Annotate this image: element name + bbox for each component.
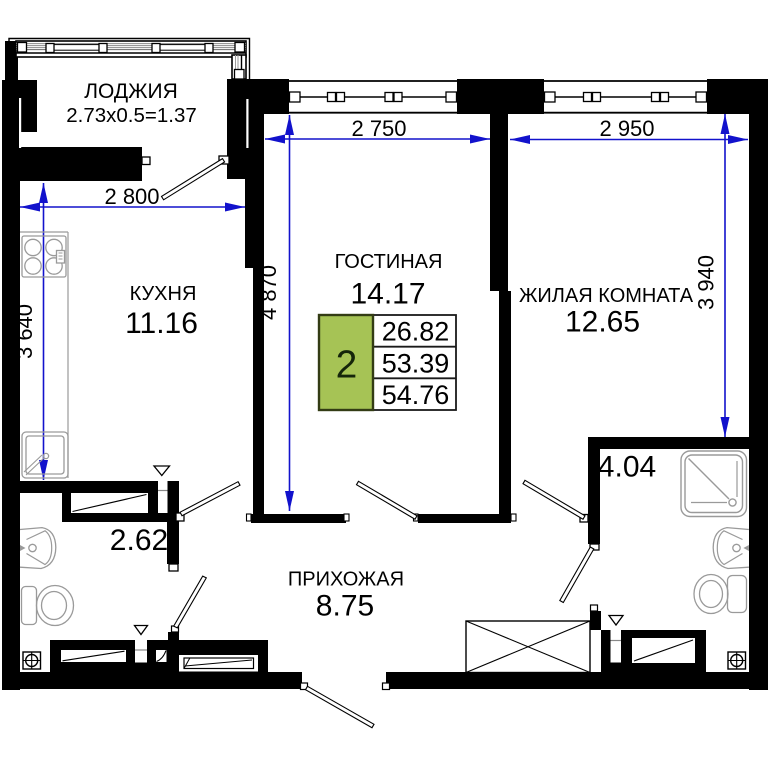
svg-text:ЛОДЖИЯ: ЛОДЖИЯ — [84, 80, 178, 103]
svg-text:3 640: 3 640 — [12, 304, 37, 359]
svg-text:2.62: 2.62 — [110, 524, 168, 557]
svg-text:8.75: 8.75 — [316, 590, 374, 623]
svg-text:2.73х0.5=1.37: 2.73х0.5=1.37 — [66, 104, 197, 127]
svg-text:3 940: 3 940 — [694, 255, 719, 310]
svg-text:2: 2 — [336, 344, 358, 387]
svg-text:2 800: 2 800 — [104, 184, 159, 209]
svg-text:4 870: 4 870 — [256, 265, 281, 320]
svg-text:ПРИХОЖАЯ: ПРИХОЖАЯ — [288, 569, 404, 591]
svg-text:11.16: 11.16 — [125, 307, 198, 340]
svg-text:ЖИЛАЯ КОМНАТА: ЖИЛАЯ КОМНАТА — [519, 285, 694, 307]
svg-text:2 950: 2 950 — [599, 116, 654, 141]
svg-text:53.39: 53.39 — [382, 348, 450, 378]
svg-text:ГОСТИНАЯ: ГОСТИНАЯ — [335, 251, 443, 273]
svg-text:КУХНЯ: КУХНЯ — [130, 283, 197, 305]
svg-text:14.17: 14.17 — [350, 278, 425, 311]
svg-text:12.65: 12.65 — [565, 306, 640, 339]
svg-text:54.76: 54.76 — [382, 380, 450, 410]
svg-text:4.04: 4.04 — [598, 451, 656, 484]
svg-text:2 750: 2 750 — [351, 116, 406, 141]
svg-text:26.82: 26.82 — [382, 317, 450, 347]
